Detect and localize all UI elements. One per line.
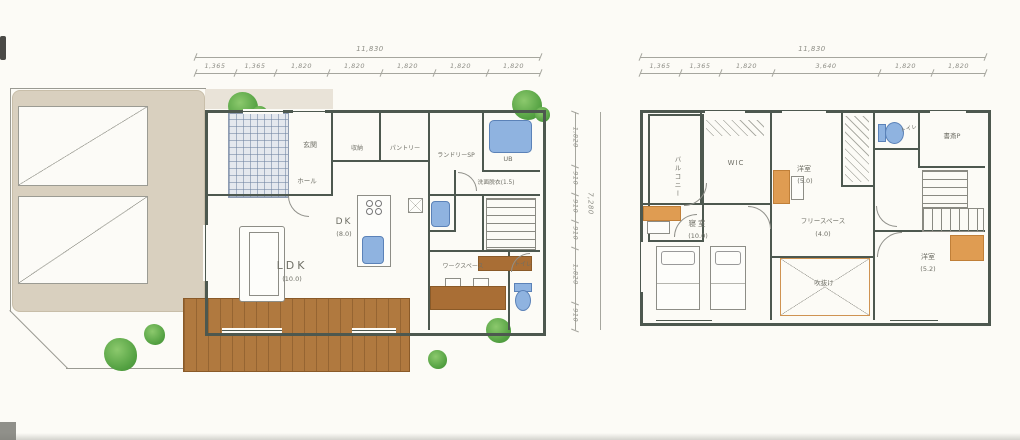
void-open-to-below bbox=[780, 258, 870, 316]
wall bbox=[482, 110, 484, 172]
stove-burner bbox=[366, 200, 373, 207]
wall bbox=[331, 110, 333, 196]
room-label-sanitary: 洗面脱衣(1.5) bbox=[454, 181, 538, 187]
room-label-hall: ホール bbox=[284, 178, 330, 185]
room-label-free-space: フリースペース bbox=[784, 218, 862, 225]
room-label-bedroom3: 洋室 bbox=[910, 254, 946, 261]
dim-label: 1,820 bbox=[434, 63, 487, 70]
closet bbox=[643, 206, 681, 221]
room-label-ldk: LDK bbox=[270, 260, 314, 271]
room-label-master: 寝室 bbox=[678, 220, 718, 228]
approach-paving bbox=[205, 89, 333, 109]
window bbox=[222, 328, 282, 333]
pillar bbox=[408, 198, 423, 213]
dim-label: 3,640 bbox=[773, 63, 879, 70]
wall bbox=[331, 160, 430, 162]
closet bbox=[950, 235, 984, 261]
room-label-void: 吹抜け bbox=[796, 280, 852, 287]
room-label-dk: DK bbox=[330, 218, 358, 227]
window bbox=[890, 318, 938, 323]
dim-tick bbox=[539, 69, 543, 77]
window bbox=[352, 328, 396, 333]
window bbox=[930, 108, 966, 113]
wall bbox=[841, 185, 875, 187]
room-size: (1.5) bbox=[501, 180, 515, 186]
wall bbox=[918, 110, 920, 168]
room-label-pantry: パントリー bbox=[382, 146, 428, 152]
entrance-tile bbox=[228, 113, 289, 198]
room-size-free-space: (4.0) bbox=[806, 231, 840, 238]
room-size-bedroom3: (5.2) bbox=[913, 266, 943, 273]
dim-label: 1,820 bbox=[487, 63, 540, 70]
bed-fold-line bbox=[657, 283, 699, 284]
room-label-toilet1: トイレ bbox=[507, 262, 539, 268]
window bbox=[243, 109, 283, 114]
dim-label: 1,365 bbox=[235, 63, 275, 70]
dim-label: 1,365 bbox=[680, 63, 720, 70]
dimension-line bbox=[640, 57, 985, 58]
wall bbox=[640, 203, 772, 205]
desk bbox=[647, 221, 670, 234]
bed bbox=[656, 246, 700, 310]
floor-plan-sheet: 玄関 ホール 収納 パントリー ランドリーSP UB 洗面脱衣(1.5) DK … bbox=[0, 0, 1020, 440]
room-size-ldk: (10.0) bbox=[274, 276, 310, 283]
dim-label: 1,820 bbox=[381, 63, 434, 70]
dim-label: 910 bbox=[572, 295, 579, 335]
parking-stall bbox=[18, 196, 148, 284]
dim-label: 1,820 bbox=[879, 63, 932, 70]
dim-tick bbox=[539, 53, 543, 61]
wall bbox=[841, 110, 843, 187]
window bbox=[293, 109, 325, 114]
bed-pillow bbox=[715, 251, 741, 265]
stairs bbox=[922, 208, 984, 232]
stove-burner bbox=[375, 200, 382, 207]
room-label-wic: WIC bbox=[716, 160, 756, 167]
room-label-bath: UB bbox=[498, 156, 518, 163]
tree bbox=[104, 338, 137, 371]
closet bbox=[706, 120, 764, 136]
wall bbox=[379, 113, 381, 160]
wall bbox=[482, 194, 484, 252]
bed bbox=[710, 246, 746, 310]
room-size-dk: (8.0) bbox=[328, 231, 360, 238]
dim-label: 1,820 bbox=[275, 63, 328, 70]
dim-label: 1,820 bbox=[328, 63, 381, 70]
toilet-fixture bbox=[515, 290, 531, 311]
wall bbox=[873, 148, 920, 150]
room-label-storage: 収納 bbox=[336, 146, 378, 152]
dim-total-label: 11,830 bbox=[772, 46, 852, 53]
stove-burner bbox=[375, 208, 382, 215]
wall bbox=[918, 166, 985, 168]
stairs bbox=[486, 198, 536, 250]
tree bbox=[428, 350, 447, 369]
room-label-bedroom2: 洋室 bbox=[788, 166, 820, 173]
parking-stall bbox=[18, 106, 148, 186]
stove-burner bbox=[366, 208, 373, 215]
dim-label: 910 bbox=[572, 213, 579, 253]
room-label-genkan: 玄関 bbox=[288, 142, 332, 149]
stairs bbox=[922, 170, 968, 208]
wall bbox=[428, 250, 540, 252]
dim-label: 1,820 bbox=[572, 117, 579, 157]
room-size-master: (10.0) bbox=[680, 233, 716, 240]
room-size-bedroom2: (5.0) bbox=[790, 178, 820, 185]
wall bbox=[205, 194, 333, 196]
room-label-laundry: ランドリーSP bbox=[428, 153, 484, 159]
window bbox=[638, 242, 643, 292]
dim-total-label: 11,830 bbox=[330, 46, 410, 53]
wall bbox=[454, 194, 456, 232]
wall bbox=[873, 110, 875, 320]
room-label-workspace: ワークスペース bbox=[432, 264, 494, 270]
bed-pillow bbox=[661, 251, 695, 265]
bathtub bbox=[489, 120, 532, 153]
bed-fold-line bbox=[711, 283, 745, 284]
dimension-line bbox=[600, 112, 601, 330]
room-label-sanitary-text: 洗面脱衣 bbox=[478, 180, 501, 186]
washbasin bbox=[431, 201, 450, 227]
tree bbox=[144, 324, 165, 345]
dim-label: 1,365 bbox=[195, 63, 235, 70]
dim-total-label: 7,280 bbox=[587, 182, 594, 226]
dim-label: 1,820 bbox=[720, 63, 773, 70]
wall bbox=[428, 230, 456, 232]
site-boundary bbox=[10, 88, 11, 312]
window bbox=[203, 225, 208, 281]
first-floor-plan: 玄関 ホール 収納 パントリー ランドリーSP UB 洗面脱衣(1.5) DK … bbox=[0, 0, 610, 440]
dimension-line bbox=[640, 73, 985, 74]
room-label-study: 書斎P bbox=[930, 133, 974, 140]
window bbox=[782, 108, 826, 113]
dim-label: 1,820 bbox=[572, 254, 579, 294]
closet bbox=[773, 170, 790, 204]
site-boundary bbox=[10, 88, 206, 89]
dim-label: 1,365 bbox=[640, 63, 680, 70]
kitchen-sink bbox=[362, 236, 384, 264]
wall bbox=[770, 110, 772, 320]
window bbox=[705, 108, 745, 113]
closet bbox=[845, 116, 869, 182]
dimension-line bbox=[195, 73, 540, 74]
wall bbox=[482, 170, 540, 172]
wall bbox=[428, 194, 540, 196]
site-boundary bbox=[9, 310, 68, 369]
window bbox=[656, 318, 712, 323]
work-desk bbox=[430, 286, 506, 310]
dimension-line bbox=[195, 57, 540, 58]
dim-label: 1,820 bbox=[932, 63, 985, 70]
